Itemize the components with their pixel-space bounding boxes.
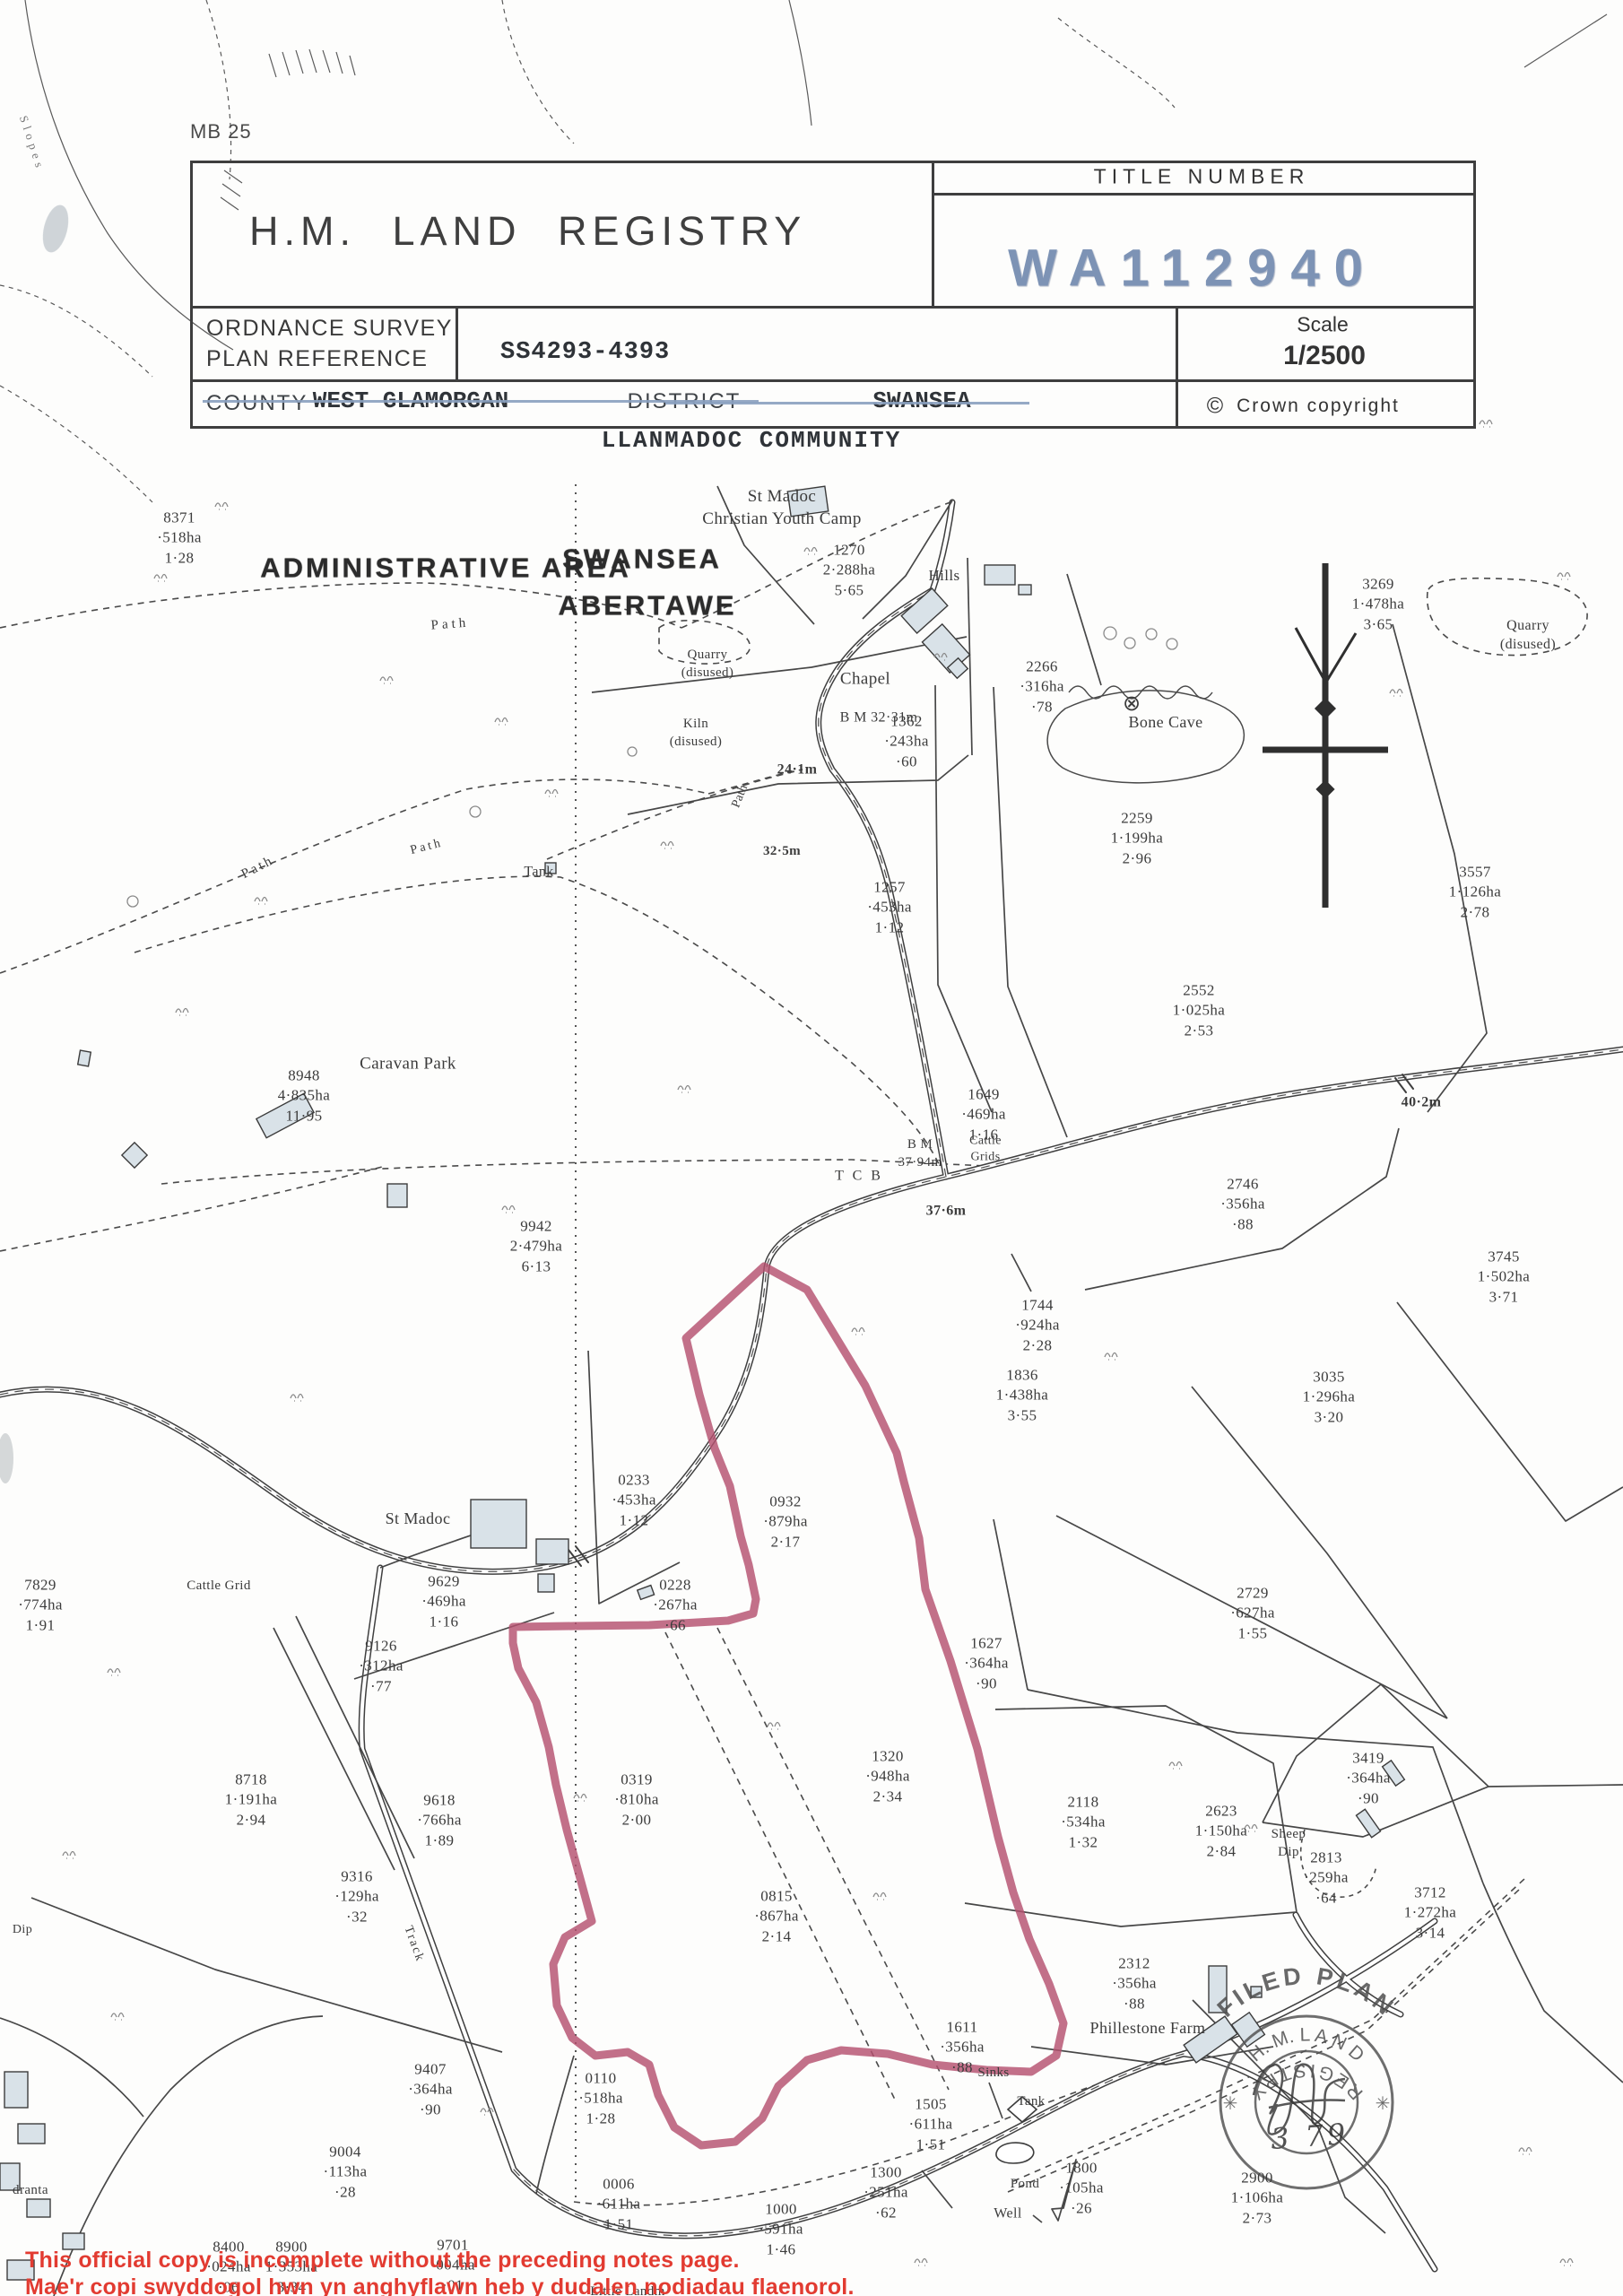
copyright-icon: © [1207,394,1223,420]
agency-title: H.M. LAND REGISTRY [249,208,806,255]
title-boundary-red [513,1266,1063,2145]
divider [193,306,1473,309]
copyright-text: Crown copyright [1237,396,1400,417]
mast-symbol [1263,563,1388,908]
stamp-bottom-text: R E G I S T R Y [1245,2059,1367,2103]
sheet-reference: MB 25 [190,120,252,143]
divider [456,308,458,381]
bone-cave-marker-icon: ⊗ [1123,691,1141,716]
title-number-label: TITLE NUMBER [1094,165,1310,189]
stamp-top-text: H. M. L A N D [1245,2024,1367,2066]
svg-text:H. M. L A N D: H. M. L A N D [1245,2024,1367,2066]
divider [932,163,934,308]
divider [932,193,1473,196]
strikethrough-line [665,402,1029,404]
os-plan-reference-label: ORDNANCE SURVEY PLAN REFERENCE [206,314,453,375]
field-boundaries [0,486,1623,2296]
scan-smudges [0,203,73,1483]
svg-text:FILED PLAN: FILED PLAN [1212,1962,1401,2022]
stamp-star-left-icon: ✳ [1223,2094,1238,2114]
bone-cave-outline [1047,686,1244,783]
incomplete-copy-notice-en: This official copy is incomplete without… [25,2248,740,2274]
footpaths-dashed [0,502,1587,2205]
incomplete-copy-notice-cy: Mae'r copi swyddogol hwn yn anghyflawn h… [25,2274,855,2296]
stamp-star-right-icon: ✳ [1376,2094,1391,2114]
community-name: LLANMADOC COMMUNITY [602,427,901,454]
buildings [0,486,1404,2280]
land-registry-filed-plan: ⊗ [0,0,1623,2296]
svg-text:R E G I S T R Y: R E G I S T R Y [1245,2059,1367,2103]
county-label: COUNTY [206,391,308,416]
registry-stamp: FILED PLAN H. M. L A N D R E G I S T R Y… [1212,1962,1401,2188]
os-plan-reference-value: SS4293-4393 [500,339,670,366]
district-value: SWANSEA [872,387,970,414]
stamp-date: 3 79 [1270,2117,1350,2156]
filed-plan-stamp-text: FILED PLAN [1212,1962,1401,2022]
title-number-stamp: WA112940 [1008,239,1377,299]
scale-value: 1/2500 [1283,341,1366,371]
scale-label: Scale [1297,313,1349,337]
divider [1176,308,1178,426]
divider [193,379,1473,382]
